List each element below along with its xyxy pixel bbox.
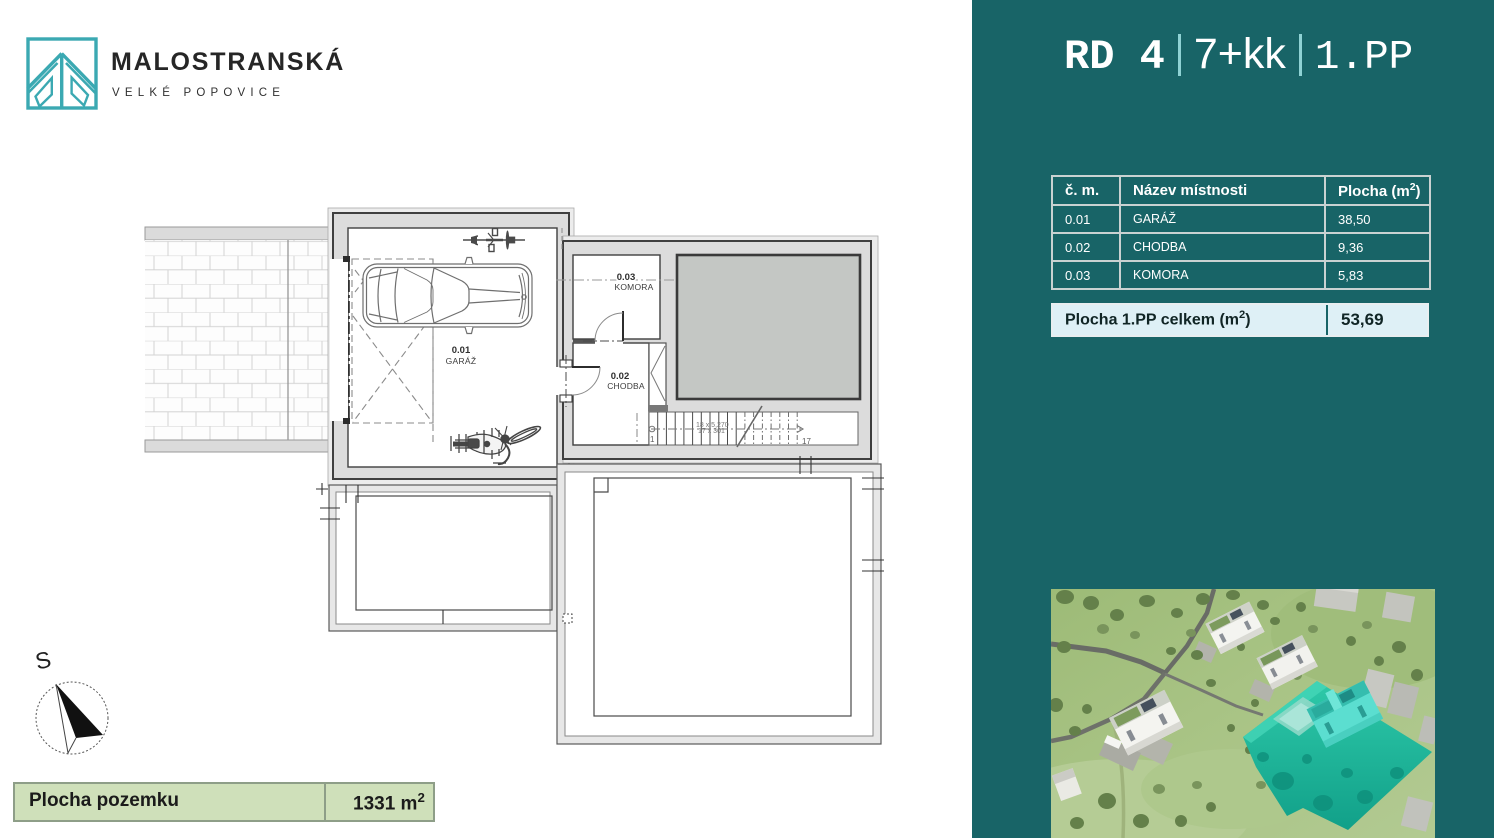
svg-text:S: S xyxy=(33,646,53,675)
svg-text:17: 17 xyxy=(802,437,811,446)
svg-text:1: 1 xyxy=(650,435,655,444)
svg-text:0.01: 0.01 xyxy=(452,345,471,356)
svg-text:KOMORA: KOMORA xyxy=(615,282,654,292)
svg-text:GARÁŽ: GARÁŽ xyxy=(446,356,477,366)
svg-text:CHODBA: CHODBA xyxy=(607,381,645,391)
svg-text:17 x 301: 17 x 301 xyxy=(698,428,725,435)
